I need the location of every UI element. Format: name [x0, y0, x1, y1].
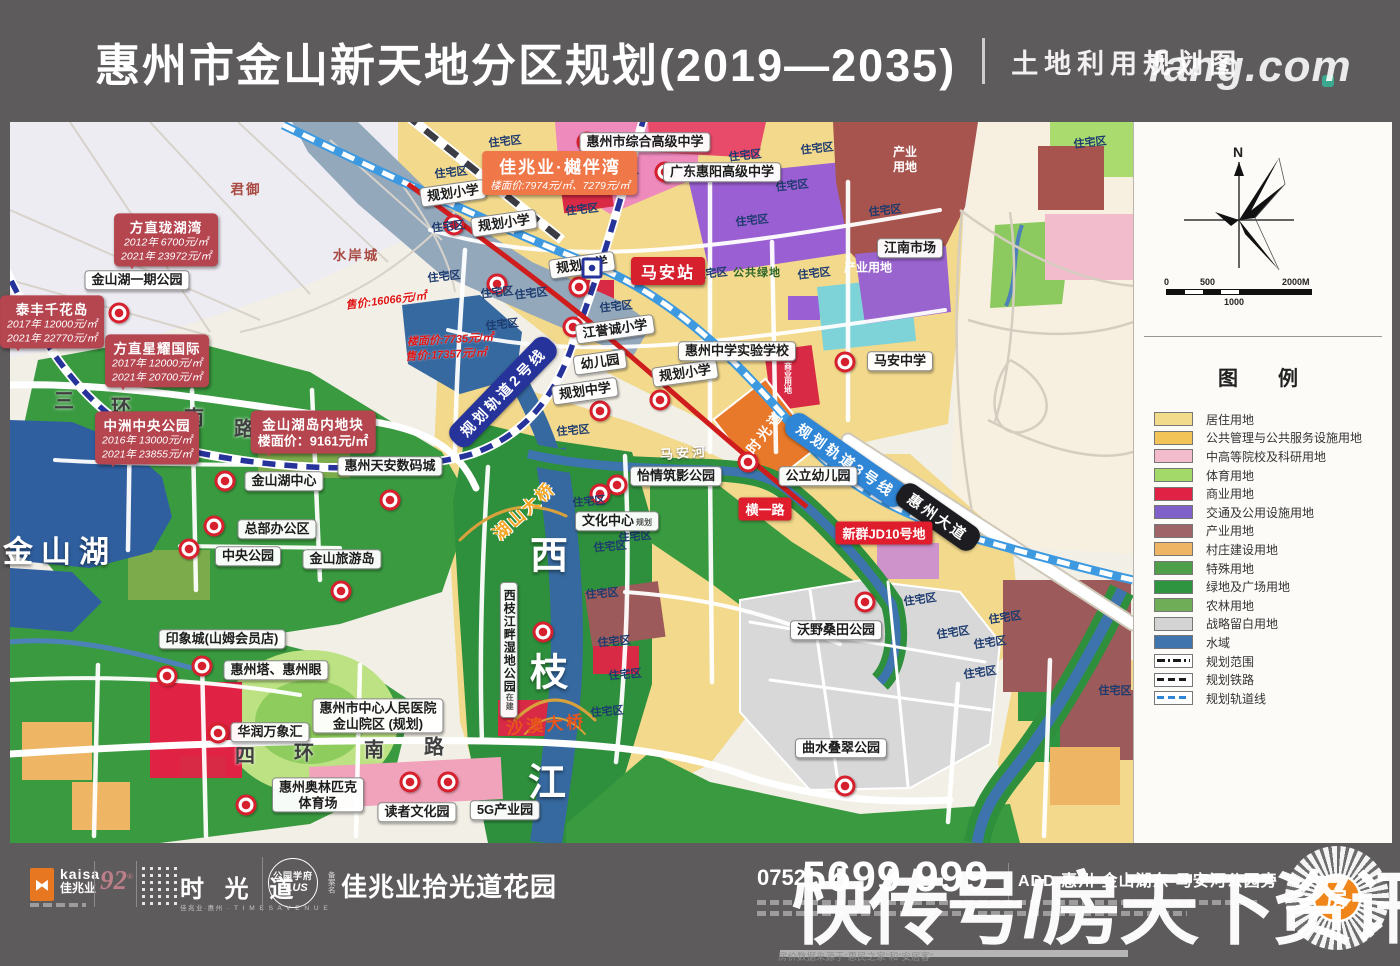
legend-swatch: [1154, 561, 1193, 575]
footer-divider: [136, 861, 137, 907]
map-canvas: [10, 122, 1133, 843]
legend-swatch: [1154, 598, 1193, 612]
anniversary-logo: 92®: [100, 865, 133, 896]
footer-divider: [262, 857, 263, 911]
legend-item: 特殊用地: [1154, 559, 1386, 578]
scale-segments: [1166, 289, 1312, 295]
legend-swatch: [1154, 412, 1193, 426]
legend-label: 交通及公用设施用地: [1206, 504, 1314, 521]
map-sheet: N 0 500 2000M 1000 图 例 居住用地公共管理与公共服务设施用地…: [10, 122, 1392, 843]
legend-label: 规划范围: [1206, 653, 1254, 670]
legend-swatch: [1154, 617, 1193, 631]
legend-swatch: [1154, 580, 1193, 594]
badge-line2: PLUS: [278, 882, 307, 894]
kaisa-tagline-bar: [30, 903, 86, 907]
legend-label: 公共管理与公共服务设施用地: [1206, 429, 1362, 446]
legend-item: 规划铁路: [1154, 670, 1386, 689]
legend-swatch: [1154, 542, 1193, 556]
legend-swatch: [1154, 654, 1193, 668]
scale-bar: 0 500 2000M 1000: [1164, 277, 1314, 311]
project-name: 佳兆业拾光道花园: [341, 867, 557, 904]
legend-swatch: [1154, 468, 1193, 482]
legend-swatch: [1154, 487, 1193, 501]
legend-title: 图 例: [1134, 362, 1392, 391]
legend-label: 绿地及广场用地: [1206, 578, 1290, 595]
legend-label: 特殊用地: [1206, 560, 1254, 577]
legend-panel: N 0 500 2000M 1000 图 例 居住用地公共管理与公共服务设施用地…: [1133, 122, 1392, 843]
kaisa-logo-icon: ⧓: [30, 868, 54, 901]
legend-list: 居住用地公共管理与公共服务设施用地中高等院校及科研用地体育用地商业用地交通及公用…: [1154, 410, 1386, 708]
compass-icon: [1164, 150, 1314, 280]
legend-item: 体育用地: [1154, 466, 1386, 485]
times-avenue-dots-icon: [142, 863, 177, 905]
legend-item: 水域: [1154, 633, 1386, 652]
legend-label: 规划铁路: [1206, 671, 1254, 688]
legend-label: 水域: [1206, 634, 1230, 651]
legend-label: 商业用地: [1206, 485, 1254, 502]
legend-swatch: [1154, 673, 1193, 687]
legend-swatch: [1154, 431, 1193, 445]
legend-label: 居住用地: [1206, 411, 1254, 428]
page-title: 惠州市金山新天地分区规划(2019—2035): [95, 29, 956, 94]
legend-item: 中高等院校及科研用地: [1154, 447, 1386, 466]
watermark: 快传号/房天下资讯: [792, 845, 1400, 961]
project-prefix: 备案名: [327, 871, 335, 894]
planning-map-page: { "header": { "title": "惠州市金山新天地分区规划(201…: [0, 0, 1400, 950]
legend-label: 产业用地: [1206, 522, 1254, 539]
legend-item: 规划轨道线: [1154, 689, 1386, 708]
watermark-fangcom: fang.com: [1148, 42, 1352, 92]
badge-line1: 公园学府: [273, 872, 313, 882]
legend-item: 农林用地: [1154, 596, 1386, 615]
header-divider: [982, 38, 985, 84]
legend-label: 体育用地: [1206, 467, 1254, 484]
legend-label: 农林用地: [1206, 597, 1254, 614]
legend-item: 战略留白用地: [1154, 615, 1386, 634]
legend-item: 村庄建设用地: [1154, 540, 1386, 559]
legend-item: 规划范围: [1154, 652, 1386, 671]
legend-item: 公共管理与公共服务设施用地: [1154, 429, 1386, 448]
legend-label: 村庄建设用地: [1206, 541, 1278, 558]
legend-label: 战略留白用地: [1206, 615, 1278, 632]
legend-label: 规划轨道线: [1206, 690, 1266, 707]
park-plus-badge: 公园学府 PLUS: [268, 858, 318, 908]
legend-swatch: [1154, 449, 1193, 463]
legend-swatch: [1154, 524, 1193, 538]
legend-item: 商业用地: [1154, 484, 1386, 503]
legend-item: 绿地及广场用地: [1154, 577, 1386, 596]
legend-swatch: [1154, 635, 1193, 649]
legend-swatch: [1154, 691, 1193, 705]
legend-item: 产业用地: [1154, 522, 1386, 541]
footer-divider: [94, 861, 95, 907]
legend-item: 交通及公用设施用地: [1154, 503, 1386, 522]
legend-item: 居住用地: [1154, 410, 1386, 429]
panel-divider: [1144, 336, 1382, 337]
legend-swatch: [1154, 505, 1193, 519]
legend-label: 中高等院校及科研用地: [1206, 448, 1326, 465]
